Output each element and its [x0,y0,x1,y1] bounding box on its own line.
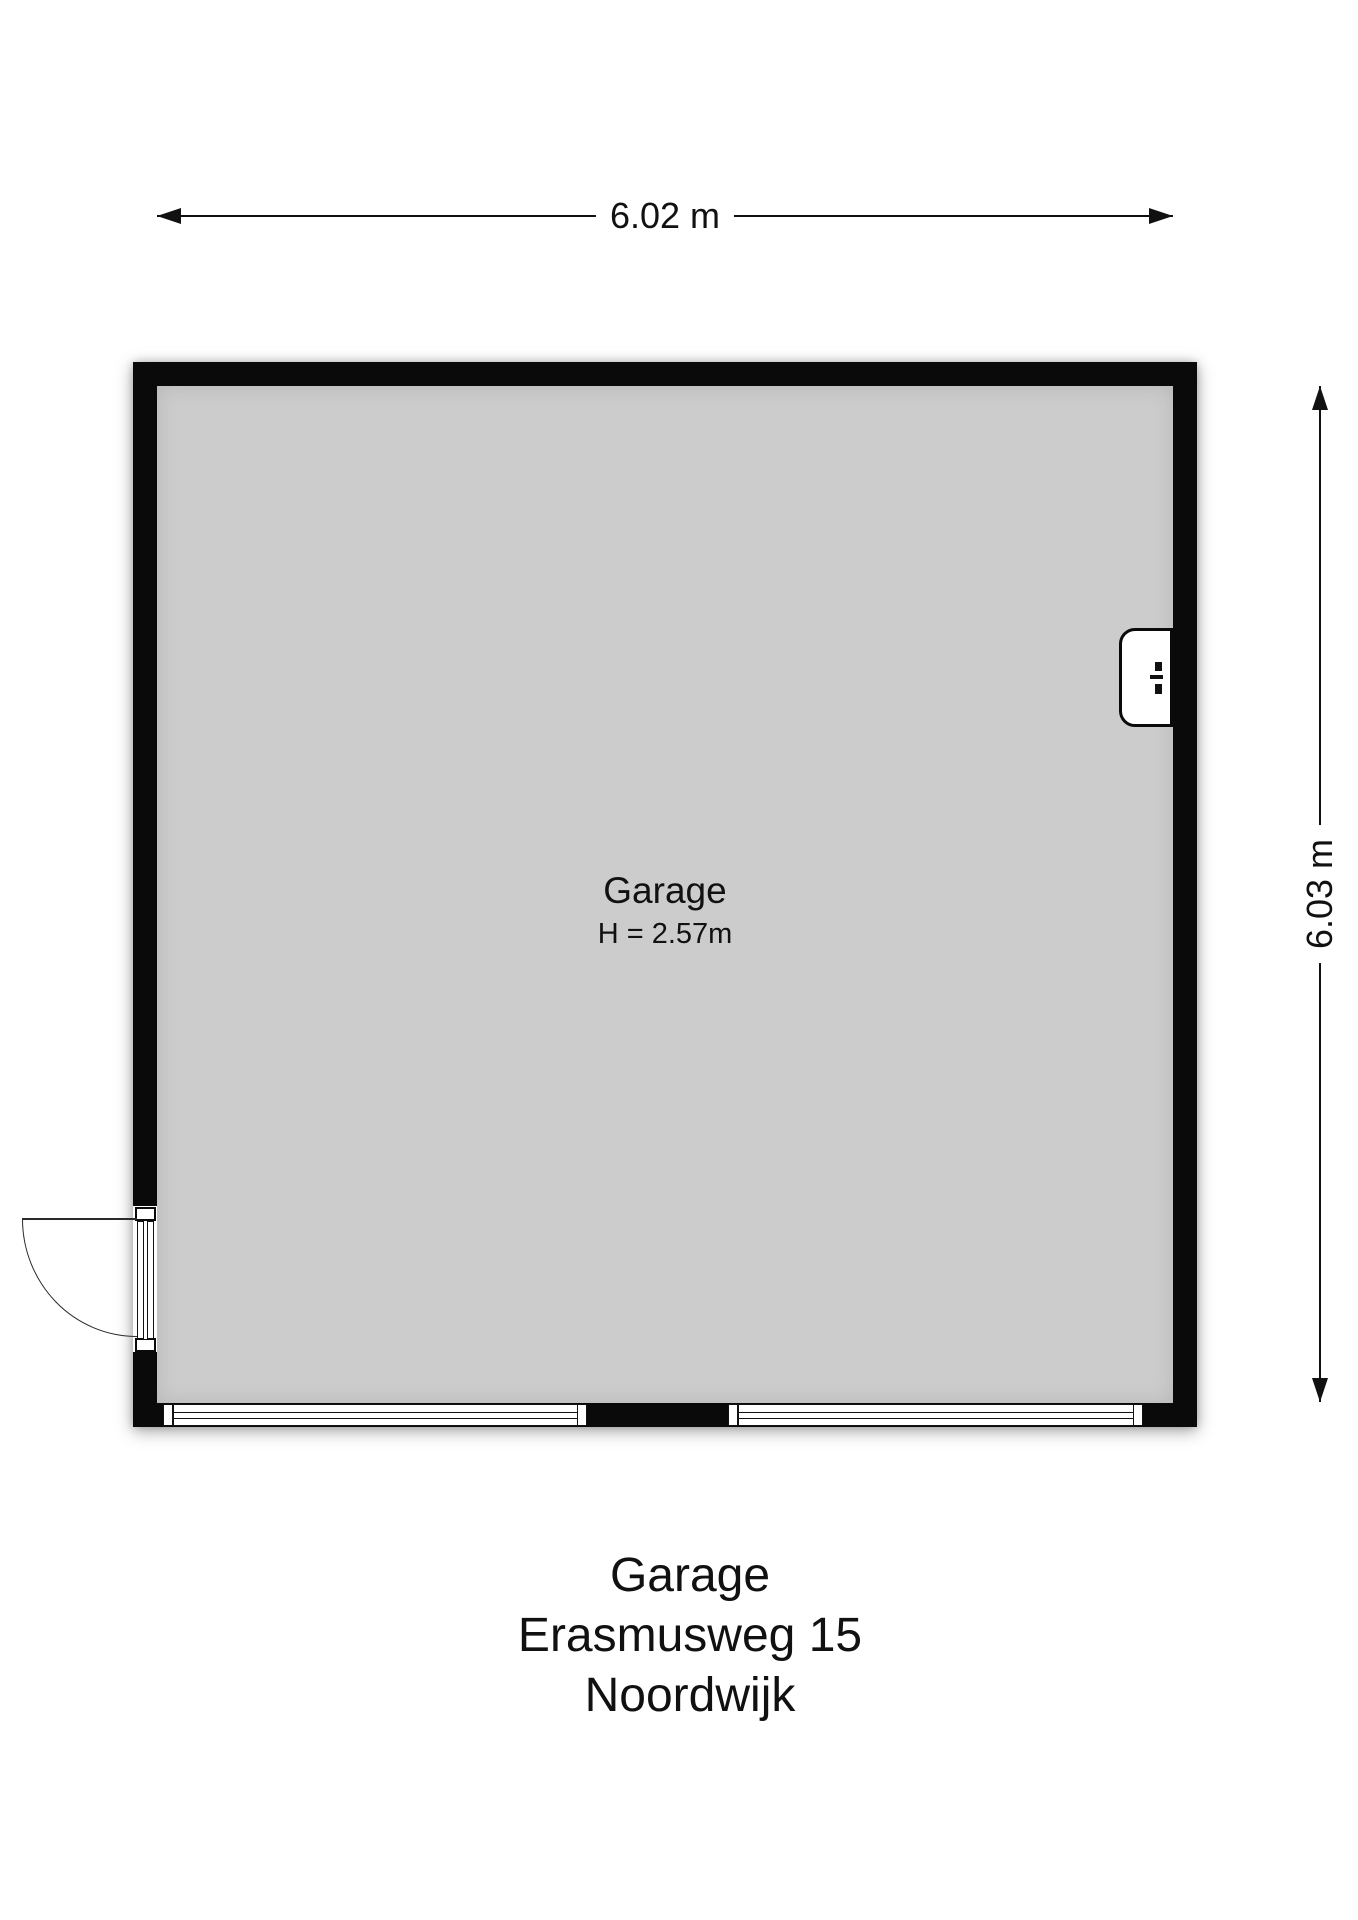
caption-address: Erasmusweg 15 [440,1606,940,1666]
window-cap [172,1405,174,1425]
garage-door-strip-right [728,1404,1143,1426]
arrow-up-icon [1312,386,1328,410]
door-swing-icon [22,1219,137,1337]
glyph-dot [1155,662,1162,671]
caption-title: Garage [440,1546,940,1606]
window-cap [577,1405,579,1425]
room-label: Garage H = 2.57m [465,870,865,951]
glyph-bar [1150,675,1163,679]
arrow-left-icon [157,208,181,224]
caption-city: Noordwijk [440,1666,940,1726]
window-cap [1133,1405,1135,1425]
door-frame-midline [143,1221,148,1339]
room-ceiling-height: H = 2.57m [465,917,865,951]
door-jamb-bottom [135,1338,156,1352]
window-cap [737,1405,739,1425]
meter-box-icon [1119,628,1173,727]
window-band [737,1412,1134,1419]
floorplan-canvas: 6.02 m 6.03 m [0,0,1358,1920]
room-name: Garage [465,870,865,912]
window-band [172,1412,578,1419]
glyph-dot [1155,684,1162,694]
meter-box-glyph [1150,662,1163,694]
width-dimension-label: 6.02 m [596,194,734,238]
plan-caption: Garage Erasmusweg 15 Noordwijk [440,1546,940,1726]
arrow-down-icon [1312,1378,1328,1402]
door-jamb-top [135,1207,156,1221]
garage-door-strip-left [163,1404,587,1426]
height-dimension-label: 6.03 m [1298,825,1342,963]
arrow-right-icon [1149,208,1173,224]
